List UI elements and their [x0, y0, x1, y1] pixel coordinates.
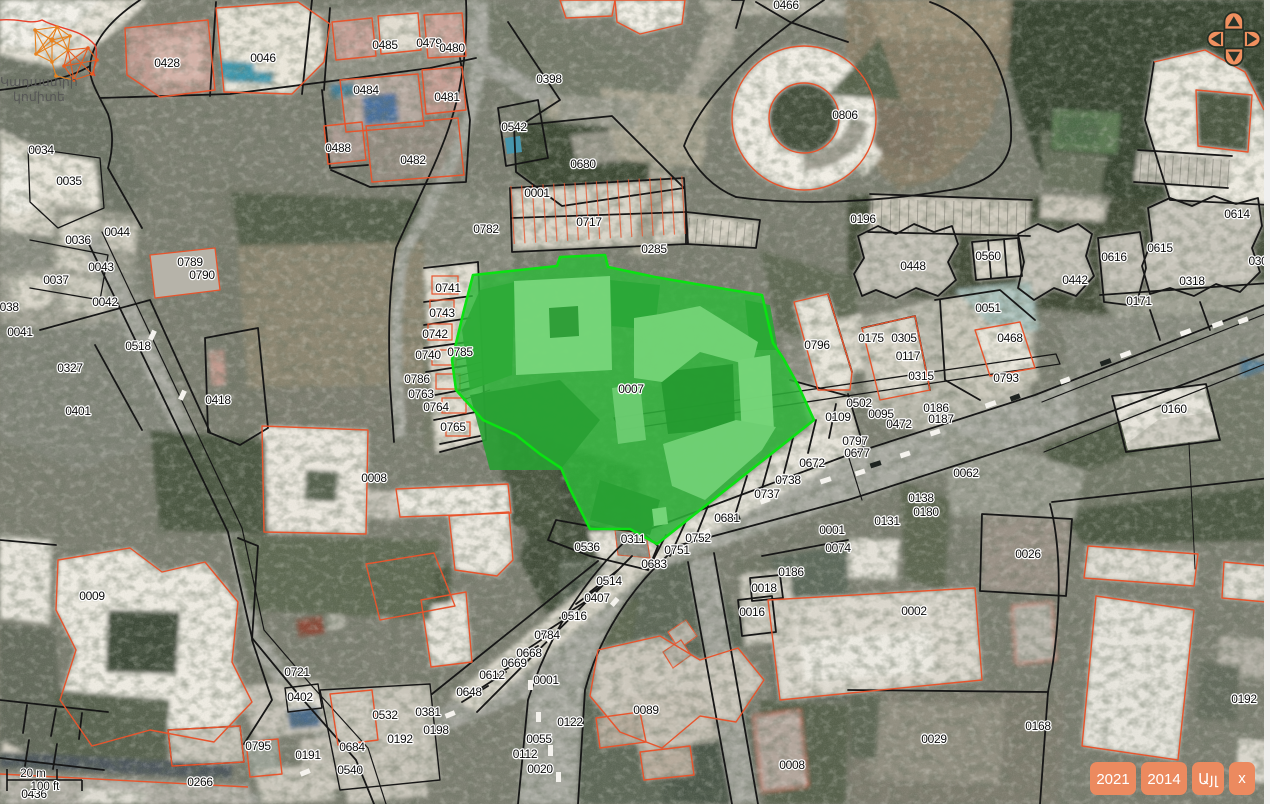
- svg-text:0305: 0305: [891, 331, 917, 345]
- svg-text:0046: 0046: [250, 51, 276, 65]
- svg-text:0532: 0532: [372, 708, 398, 722]
- svg-text:0468: 0468: [997, 331, 1023, 345]
- svg-text:0037: 0037: [43, 273, 69, 287]
- svg-text:0191: 0191: [295, 748, 321, 762]
- svg-text:0782: 0782: [473, 222, 499, 236]
- svg-text:0401: 0401: [65, 404, 91, 418]
- svg-text:0038: 0038: [0, 300, 19, 314]
- svg-text:0485: 0485: [372, 38, 398, 52]
- svg-text:0035: 0035: [56, 174, 82, 188]
- svg-text:0418: 0418: [205, 393, 231, 407]
- svg-text:0428: 0428: [154, 56, 180, 70]
- svg-text:0180: 0180: [913, 505, 939, 519]
- svg-text:0741: 0741: [435, 281, 461, 295]
- svg-text:0187: 0187: [928, 412, 954, 426]
- svg-text:0612: 0612: [479, 668, 505, 682]
- svg-text:0793: 0793: [993, 371, 1019, 385]
- svg-text:0074: 0074: [825, 541, 851, 555]
- svg-text:0016: 0016: [739, 605, 765, 619]
- svg-text:0763: 0763: [408, 387, 434, 401]
- svg-text:0542: 0542: [501, 120, 527, 134]
- svg-text:0062: 0062: [953, 466, 979, 480]
- svg-text:0616: 0616: [1101, 250, 1127, 264]
- svg-text:0680: 0680: [570, 157, 596, 171]
- svg-text:0315: 0315: [908, 369, 934, 383]
- svg-text:0742: 0742: [422, 327, 448, 341]
- svg-text:0482: 0482: [400, 153, 426, 167]
- svg-text:0536: 0536: [574, 540, 600, 554]
- svg-text:0008: 0008: [361, 471, 387, 485]
- svg-text:0318: 0318: [1179, 274, 1205, 288]
- svg-text:կոմիտե: կոմիտե: [13, 90, 65, 104]
- svg-text:0171: 0171: [1126, 294, 1152, 308]
- svg-text:0448: 0448: [900, 259, 926, 273]
- svg-text:0007: 0007: [618, 382, 644, 396]
- svg-text:0043: 0043: [88, 260, 114, 274]
- svg-text:0402: 0402: [287, 690, 313, 704]
- svg-text:2014: 2014: [1147, 771, 1180, 788]
- svg-text:0669: 0669: [501, 656, 527, 670]
- svg-text:0480: 0480: [439, 41, 465, 55]
- svg-text:Այլ: Այլ: [1198, 771, 1219, 788]
- svg-text:0806: 0806: [832, 108, 858, 122]
- svg-text:20 m: 20 m: [20, 768, 46, 780]
- svg-text:0672: 0672: [799, 456, 825, 470]
- svg-text:0472: 0472: [886, 417, 912, 431]
- svg-text:0751: 0751: [664, 543, 690, 557]
- svg-text:0721: 0721: [284, 665, 310, 679]
- svg-text:0001: 0001: [819, 523, 845, 537]
- svg-text:0168: 0168: [1025, 719, 1051, 733]
- svg-text:0138: 0138: [908, 491, 934, 505]
- svg-text:0192: 0192: [387, 732, 413, 746]
- svg-text:0743: 0743: [429, 306, 455, 320]
- svg-text:0481: 0481: [434, 90, 460, 104]
- svg-text:0112: 0112: [513, 747, 538, 761]
- svg-text:0186: 0186: [778, 565, 804, 579]
- svg-text:x: x: [1238, 770, 1246, 787]
- svg-text:0018: 0018: [751, 581, 777, 595]
- svg-text:0540: 0540: [337, 763, 363, 777]
- svg-text:0615: 0615: [1147, 241, 1173, 255]
- svg-text:0311: 0311: [621, 532, 646, 546]
- svg-text:0131: 0131: [874, 514, 900, 528]
- svg-text:0398: 0398: [536, 72, 562, 86]
- svg-text:0738: 0738: [775, 473, 801, 487]
- svg-text:0785: 0785: [447, 345, 473, 359]
- svg-text:0681: 0681: [714, 511, 740, 525]
- svg-text:0614: 0614: [1224, 207, 1250, 221]
- svg-text:0285: 0285: [641, 242, 667, 256]
- svg-text:0560: 0560: [975, 249, 1001, 263]
- svg-text:0041: 0041: [7, 325, 33, 339]
- svg-text:0442: 0442: [1062, 273, 1088, 287]
- svg-text:0381: 0381: [415, 705, 441, 719]
- svg-text:0020: 0020: [527, 762, 553, 776]
- svg-text:0518: 0518: [125, 339, 151, 353]
- svg-text:0784: 0784: [534, 628, 560, 642]
- svg-text:0029: 0029: [921, 732, 947, 746]
- svg-text:0795: 0795: [245, 739, 271, 753]
- svg-text:0740: 0740: [415, 348, 441, 362]
- svg-text:2021: 2021: [1096, 771, 1129, 788]
- svg-text:0683: 0683: [641, 557, 667, 571]
- svg-text:Կադաստրի: Կադաստրի: [0, 75, 78, 89]
- svg-text:0677: 0677: [844, 446, 870, 460]
- svg-text:0008: 0008: [779, 758, 805, 772]
- svg-text:0765: 0765: [440, 420, 466, 434]
- svg-text:0196: 0196: [850, 212, 876, 226]
- svg-text:0466: 0466: [773, 0, 799, 12]
- svg-text:0684: 0684: [339, 740, 365, 754]
- svg-text:0001: 0001: [533, 673, 559, 687]
- svg-text:0055: 0055: [526, 732, 552, 746]
- svg-text:0648: 0648: [456, 685, 482, 699]
- svg-text:0488: 0488: [325, 141, 351, 155]
- svg-text:0796: 0796: [804, 338, 830, 352]
- svg-text:0516: 0516: [561, 609, 587, 623]
- svg-text:0484: 0484: [353, 83, 379, 97]
- svg-text:0122: 0122: [557, 715, 583, 729]
- svg-text:0790: 0790: [189, 268, 215, 282]
- svg-text:0717: 0717: [576, 215, 602, 229]
- svg-text:0026: 0026: [1015, 547, 1041, 561]
- svg-text:0036: 0036: [65, 233, 91, 247]
- svg-text:0407: 0407: [584, 591, 610, 605]
- svg-text:0089: 0089: [633, 703, 659, 717]
- svg-text:0160: 0160: [1161, 402, 1187, 416]
- svg-text:0009: 0009: [79, 589, 105, 603]
- svg-text:0001: 0001: [524, 186, 550, 200]
- svg-text:0737: 0737: [754, 487, 780, 501]
- svg-text:0327: 0327: [57, 361, 83, 375]
- svg-text:0175: 0175: [858, 331, 884, 345]
- svg-text:0109: 0109: [825, 410, 851, 424]
- svg-text:0764: 0764: [423, 400, 449, 414]
- svg-text:100 ft: 100 ft: [31, 781, 61, 793]
- svg-text:0002: 0002: [901, 604, 927, 618]
- svg-text:0042: 0042: [92, 295, 118, 309]
- svg-text:0786: 0786: [404, 372, 430, 386]
- svg-text:0192: 0192: [1231, 692, 1257, 706]
- svg-text:0034: 0034: [28, 143, 54, 157]
- svg-text:0051: 0051: [975, 301, 1001, 315]
- svg-text:0789: 0789: [177, 255, 203, 269]
- svg-text:0514: 0514: [596, 574, 622, 588]
- svg-text:0117: 0117: [896, 349, 921, 363]
- svg-text:0044: 0044: [104, 225, 130, 239]
- svg-text:0198: 0198: [423, 723, 449, 737]
- svg-text:0266: 0266: [187, 775, 213, 789]
